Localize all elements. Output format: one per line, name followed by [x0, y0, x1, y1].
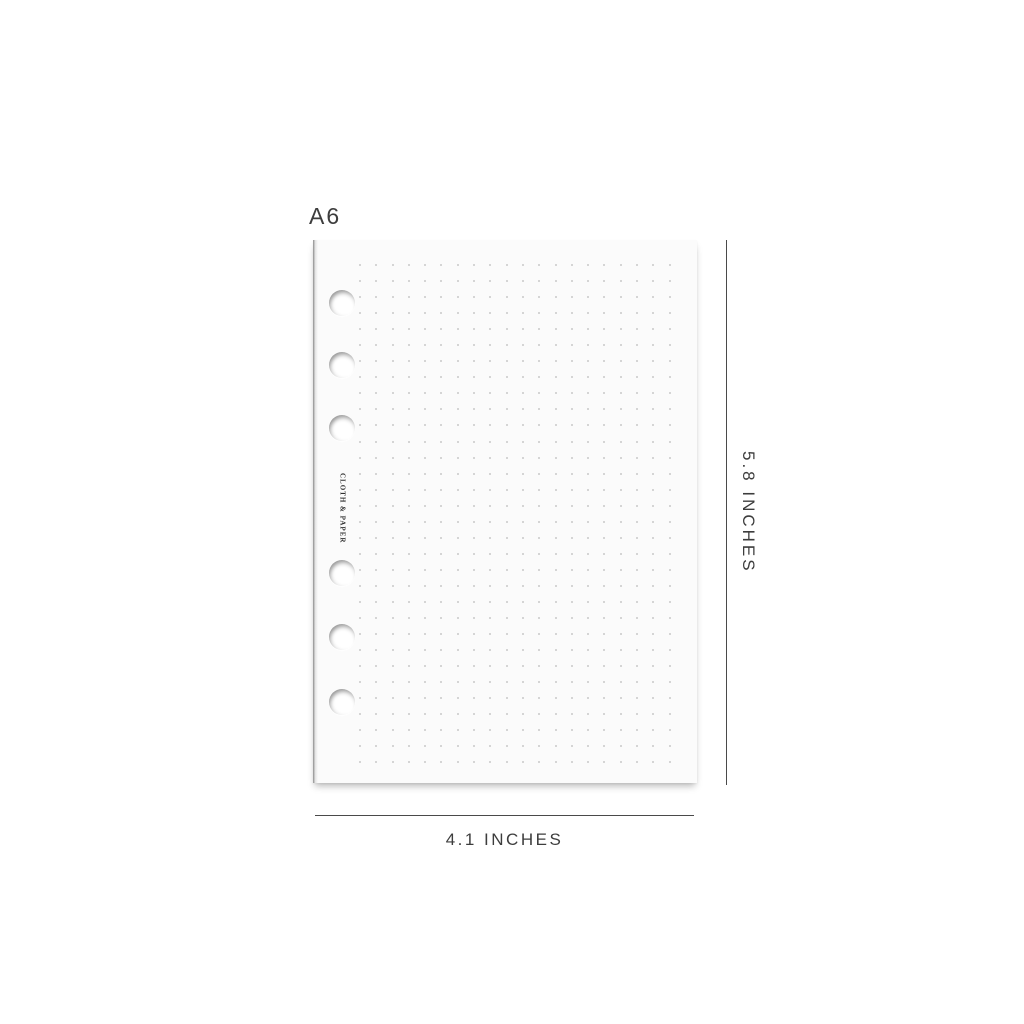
punch-hole — [329, 415, 355, 441]
punch-hole — [329, 352, 355, 378]
punch-hole — [329, 624, 355, 650]
punch-hole — [329, 290, 355, 316]
width-dimension-label: 4.1 INCHES — [315, 830, 694, 850]
product-mockup: A6 CLOTH & PAPER 5.8 INCHES 4.1 INCHES — [0, 0, 1024, 1024]
brand-label: CLOTH & PAPER — [336, 479, 349, 537]
punch-hole — [329, 689, 355, 715]
punch-holes — [313, 240, 697, 783]
punch-hole — [329, 560, 355, 586]
planner-page: CLOTH & PAPER — [313, 240, 697, 783]
height-dimension-label: 5.8 INCHES — [736, 240, 760, 785]
size-label: A6 — [309, 203, 341, 230]
height-dimension-line — [726, 240, 727, 785]
width-dimension-line — [315, 815, 694, 816]
